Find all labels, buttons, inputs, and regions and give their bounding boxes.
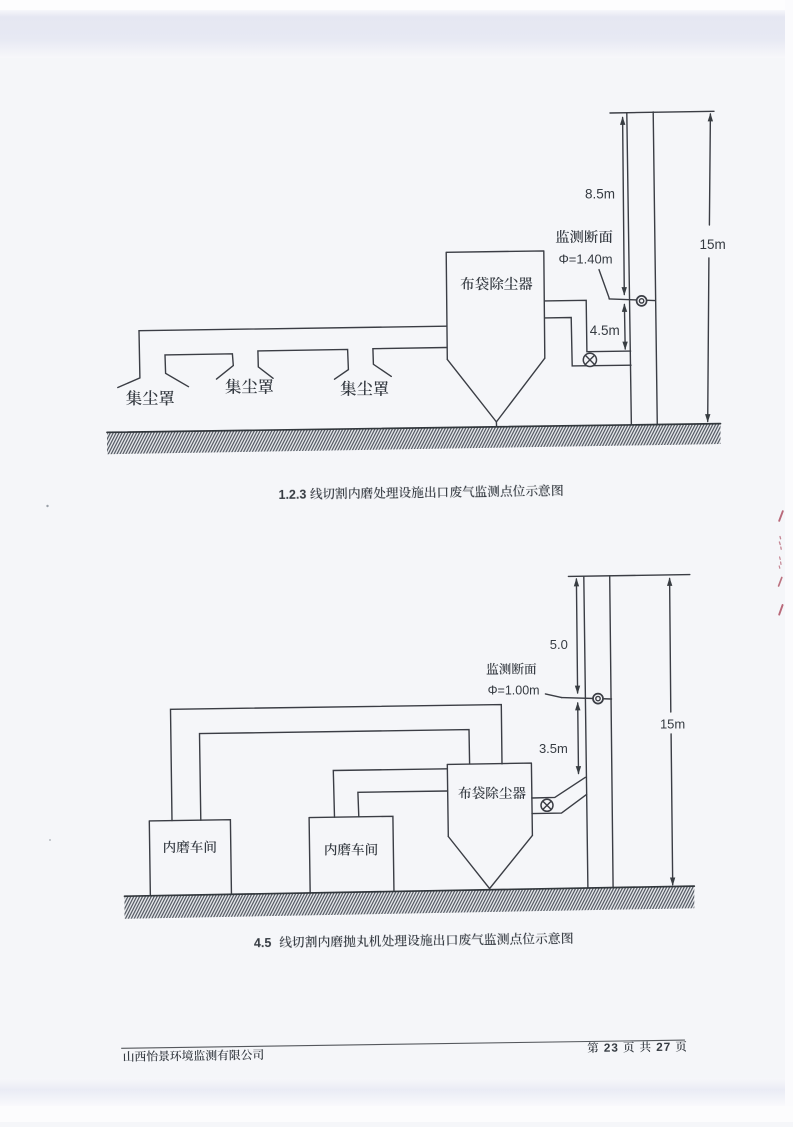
svg-text:Φ=1.00m: Φ=1.00m [488, 683, 540, 697]
svg-text:集尘罩: 集尘罩 [340, 375, 389, 399]
svg-text:监测断面: 监测断面 [486, 659, 537, 678]
svg-text:山西怡景环境监测有限公司: 山西怡景环境监测有限公司 [123, 1046, 265, 1065]
svg-text:Φ=1.40m: Φ=1.40m [558, 251, 612, 266]
svg-text:内磨车间: 内磨车间 [324, 839, 379, 859]
svg-text:监测断面: 监测断面 [555, 226, 613, 247]
svg-text:集尘罩: 集尘罩 [225, 374, 274, 398]
svg-text:集尘罩: 集尘罩 [126, 385, 175, 409]
svg-text:3.5m: 3.5m [539, 741, 568, 756]
svg-text:8.5m: 8.5m [585, 186, 615, 201]
svg-text:第 23 页 共 27 页: 第 23 页 共 27 页 [587, 1039, 688, 1056]
svg-text:15m: 15m [699, 237, 725, 252]
svg-text:4.5m: 4.5m [590, 323, 620, 338]
svg-text:内磨车间: 内磨车间 [163, 836, 218, 856]
svg-text:5.0: 5.0 [550, 637, 568, 652]
svg-text:15m: 15m [660, 717, 685, 732]
svg-text:1.2.3 线切割内磨处理设施出口废气监测点位示意图: 1.2.3 线切割内磨处理设施出口废气监测点位示意图 [278, 480, 563, 503]
svg-text:布袋除尘器: 布袋除尘器 [460, 273, 533, 294]
svg-text:布袋除尘器: 布袋除尘器 [458, 782, 526, 802]
